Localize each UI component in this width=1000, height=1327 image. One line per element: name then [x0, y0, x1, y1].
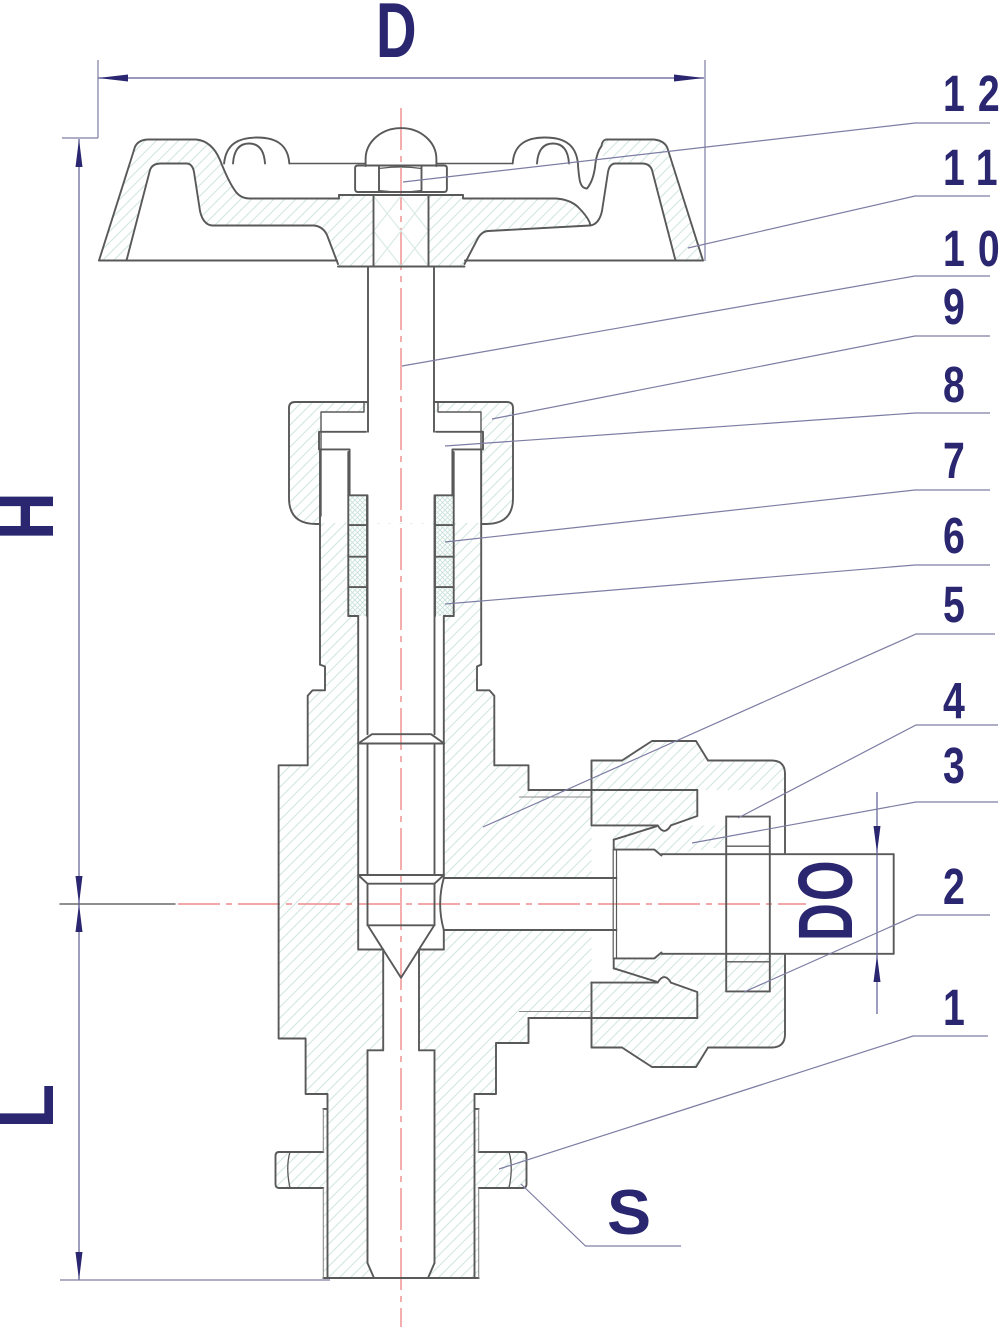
svg-text:6: 6: [943, 507, 965, 564]
svg-text:10: 10: [943, 220, 1000, 277]
svg-text:H: H: [0, 492, 70, 540]
svg-text:4: 4: [943, 672, 965, 729]
svg-text:5: 5: [943, 576, 965, 633]
svg-text:1: 1: [943, 979, 965, 1036]
svg-text:7: 7: [943, 432, 965, 489]
svg-text:3: 3: [943, 737, 965, 794]
svg-text:L: L: [0, 1084, 70, 1129]
svg-text:8: 8: [943, 356, 965, 413]
svg-text:11: 11: [943, 139, 1000, 196]
svg-text:2: 2: [943, 858, 965, 915]
svg-text:12: 12: [943, 65, 1000, 122]
svg-text:DO: DO: [782, 858, 869, 941]
svg-text:9: 9: [943, 278, 965, 335]
svg-text:S: S: [607, 1177, 651, 1247]
svg-text:D: D: [376, 0, 417, 74]
